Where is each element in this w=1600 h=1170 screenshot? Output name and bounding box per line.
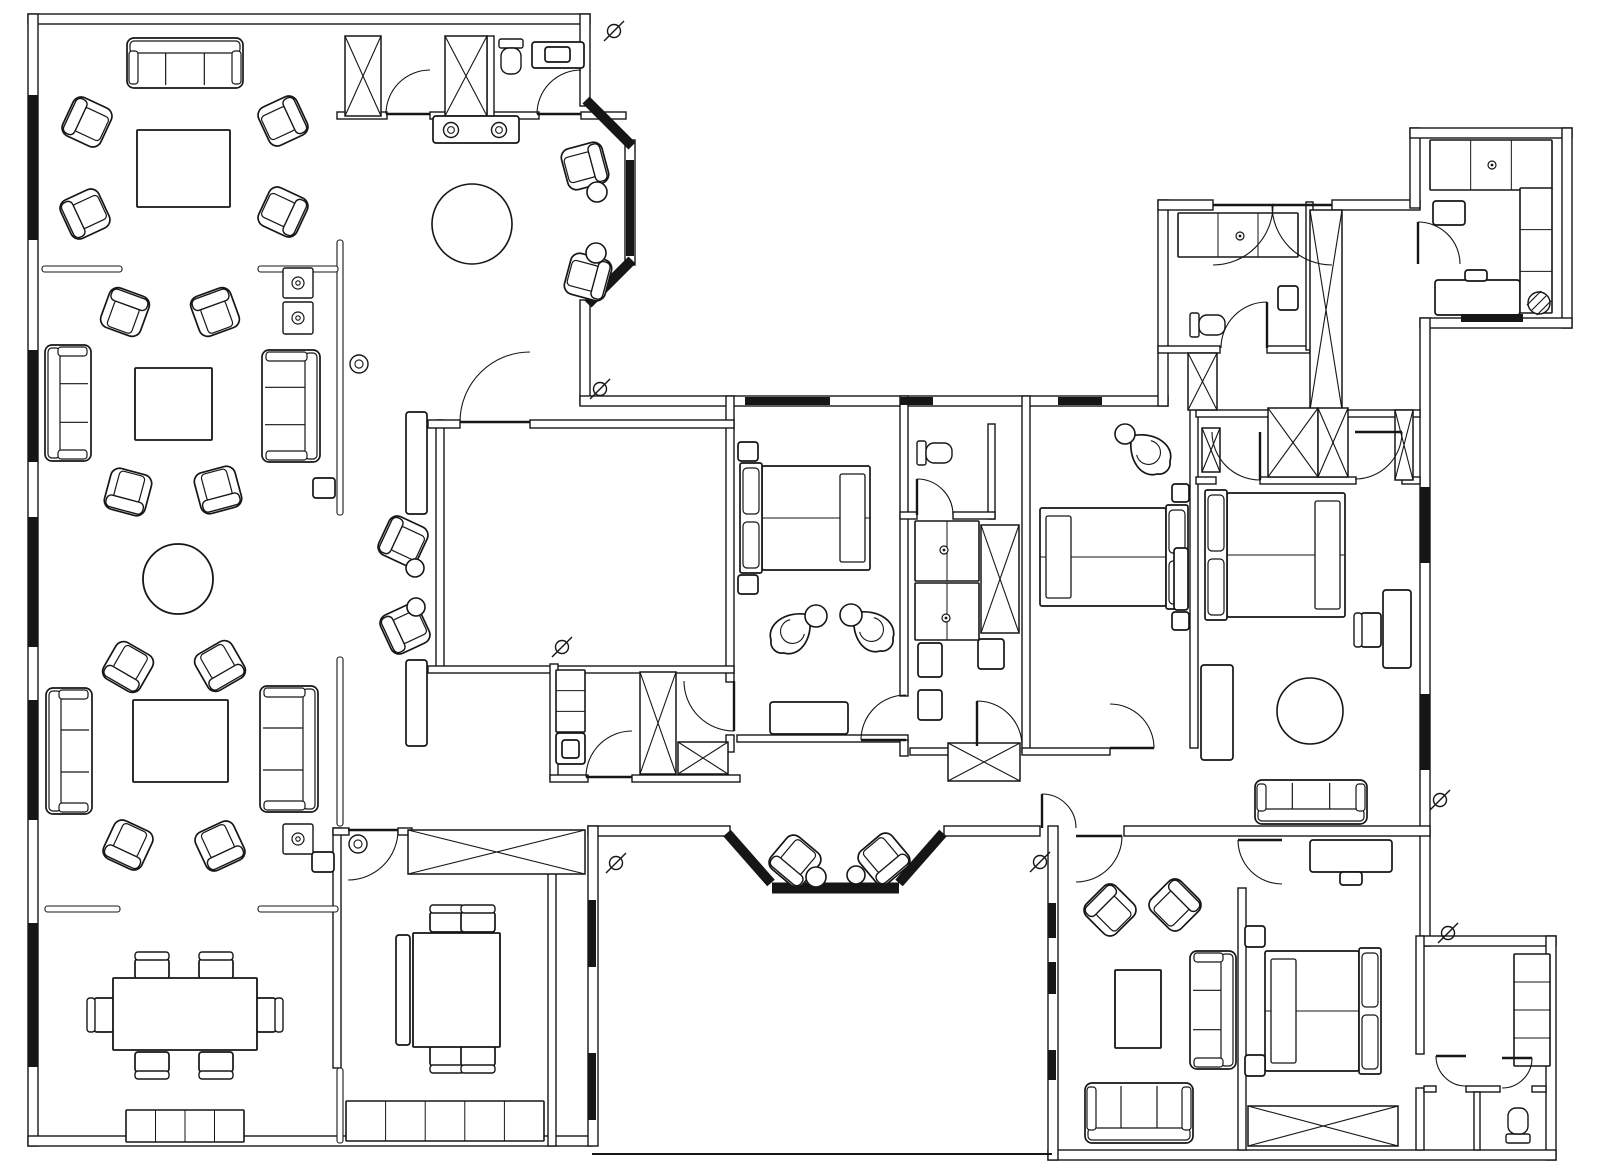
door [586,731,632,777]
coffee-table [137,130,230,207]
appliance [1433,201,1465,225]
part [1383,590,1411,668]
part [406,412,427,514]
wall [988,424,995,519]
part [461,1065,495,1073]
chair [1145,875,1204,934]
closet [1318,408,1348,477]
side-table-round [407,598,425,616]
part [430,912,464,932]
closet [1202,428,1220,472]
sofa-3seat [262,350,320,462]
cabinet-row [346,1101,544,1141]
part [1461,314,1523,322]
door-swing-arc [1418,222,1460,264]
part [918,643,942,677]
part [1199,315,1225,335]
part [1087,1087,1096,1130]
wall [436,420,444,672]
side-table-round [806,867,826,887]
part [1046,516,1071,598]
wall [580,300,590,404]
part [135,952,169,960]
door [537,70,581,114]
level-mark [604,21,624,41]
part [1174,548,1188,610]
part [135,1071,169,1079]
closet [678,742,728,774]
part [1310,840,1392,872]
door [1238,840,1282,884]
cabinet [978,639,1004,669]
chair [102,466,153,517]
part [232,51,241,84]
wall [530,420,734,428]
part [49,691,61,811]
planter [350,355,368,373]
part [199,1071,233,1079]
bench [770,702,848,734]
level-mark [1030,852,1050,872]
double-bed [1265,948,1381,1074]
wall [1158,200,1168,406]
sliding-partition-track [337,240,343,515]
part [58,347,87,356]
bench [396,935,410,1045]
part [430,1065,464,1073]
part [461,1046,495,1066]
part [406,660,427,746]
sofa-3seat [46,688,92,814]
sofa-3seat [127,38,243,88]
part [1354,613,1362,647]
closet [1248,1106,1398,1146]
side-table-round [1115,424,1135,444]
wall [1410,128,1572,138]
part [133,700,228,782]
part [1361,613,1381,647]
cabinet [918,643,942,677]
part [58,450,87,459]
wall [1416,936,1424,1054]
part [313,478,335,498]
closet [345,36,381,116]
chair [255,93,311,149]
part [1277,678,1343,744]
part [407,598,425,616]
speaker-box [283,824,313,854]
part [94,998,114,1032]
side-table [313,478,335,498]
planter [349,835,367,853]
closet [1268,408,1318,477]
wall [1474,1092,1480,1150]
part [266,451,307,460]
part [743,522,759,568]
sliding-partition-track [45,906,120,912]
toilet [1506,1108,1530,1143]
window [727,833,771,883]
part [432,184,512,264]
sofa-2seat [1255,780,1367,824]
side-table-round [847,866,865,884]
part [917,441,926,465]
part [1257,784,1266,811]
chair [99,638,156,695]
door [1042,794,1076,828]
dining-table [113,978,257,1050]
part [840,604,862,626]
sofa-3seat [260,686,318,812]
schair [135,1052,169,1079]
chair [192,464,243,515]
part [87,998,95,1032]
part [1315,501,1340,609]
wardrobe [556,670,585,732]
window [586,100,632,146]
part [135,368,212,440]
part [59,803,88,812]
wall [28,14,590,24]
double-bed [1040,505,1188,609]
part [296,316,300,320]
part [1208,559,1224,615]
closet [445,36,487,116]
schair [461,1046,495,1073]
part [305,353,317,459]
round-table [143,544,213,614]
part [137,130,230,207]
part [586,243,606,263]
part [135,959,169,979]
wall [1158,200,1213,210]
schair [87,998,114,1032]
wall [1124,826,1430,836]
part [461,905,495,913]
part [1465,270,1487,281]
door [1418,222,1460,264]
wall [1466,1086,1500,1092]
part [406,559,424,577]
part [448,127,455,134]
part [738,575,758,594]
part [562,740,579,758]
area-rug [1115,970,1161,1048]
double-bed [1205,490,1345,620]
part [430,1046,464,1066]
wall [1267,346,1310,353]
door-swing-arc [1110,704,1154,748]
part [496,127,503,134]
floor-plan-page [0,0,1600,1170]
part [199,1052,233,1072]
part [199,952,233,960]
wall [333,828,349,835]
sliding-partition-track [337,1068,343,1143]
wall [1410,128,1420,208]
part [1208,495,1224,551]
console [406,412,427,514]
part [743,468,759,514]
level-mark [552,637,572,657]
wall [1022,396,1030,752]
door [684,681,734,731]
wall [1420,318,1430,946]
chair [375,513,431,569]
part [1245,926,1265,947]
wall [1158,346,1220,353]
part [978,639,1004,669]
door [1436,1056,1466,1086]
sofa-3seat [1085,1083,1193,1143]
part [1435,280,1520,315]
schair [199,1052,233,1079]
door [917,479,953,515]
schair [461,905,495,932]
part [1340,872,1362,885]
part [396,935,410,1045]
part [1362,1015,1378,1069]
island-knob [1465,270,1487,281]
sliding-partition-track [258,906,338,912]
part [275,998,283,1032]
chair [1080,880,1139,939]
schair [135,952,169,979]
door [977,701,1022,746]
closet [1188,353,1217,410]
part [499,39,523,48]
part [129,51,138,84]
part [354,840,362,848]
nightstand [738,442,758,461]
chair [57,186,113,242]
wall [900,740,908,756]
schair [430,905,464,932]
schair [199,952,233,979]
sideboard [126,1110,244,1142]
chair [255,184,311,240]
schair [1354,613,1381,647]
part [587,182,607,202]
part [1239,235,1242,238]
part [806,867,826,887]
toilet [917,441,952,465]
sink [942,614,950,622]
part [266,352,307,361]
wall [1332,200,1420,210]
part [1088,1128,1190,1140]
wall [726,396,734,682]
wall [550,775,588,782]
part [770,702,848,734]
coffee-table [133,700,228,782]
nightstand [1245,1055,1265,1076]
part [545,47,570,62]
door-swing-arc [1076,836,1122,882]
wall [900,396,908,696]
part [143,544,213,614]
wall [1022,748,1110,755]
closet [640,672,676,774]
side-table-round [406,559,424,577]
wall [632,775,740,782]
part [1115,424,1135,444]
wall [487,36,494,119]
level-mark [606,853,626,873]
sink [1236,232,1244,240]
sofa-3seat [1190,951,1236,1069]
door-swing-arc [1042,794,1076,828]
side-table-round [805,605,827,627]
wall [953,512,995,519]
sink [940,546,948,554]
part [1508,1108,1528,1134]
part [135,1052,169,1072]
door-swing-arc [537,70,581,114]
floor-plan-drawing [0,0,1600,1170]
part [346,1101,544,1141]
closet [981,525,1019,633]
wall [944,826,1040,836]
part [312,852,334,872]
door-swing-arc [684,681,734,731]
wall [548,870,556,1146]
chair [98,285,152,339]
door-swing-arc [1221,302,1267,348]
door-swing-arc [460,352,530,422]
sofa-3seat [45,345,91,461]
sliding-partition-track [337,657,343,826]
part [1190,313,1199,337]
nightstand [1172,612,1189,630]
door-swing-arc [586,731,632,777]
nightstand [738,575,758,594]
wall [900,512,917,519]
chaise [1201,665,1233,760]
part [1221,954,1233,1066]
wall [588,826,730,836]
part [113,978,257,1050]
part [303,689,315,809]
console [406,660,427,746]
chair [188,285,242,339]
door-swing-arc [977,701,1022,746]
planter [492,123,507,138]
part [1245,1055,1265,1076]
door [1221,302,1267,348]
nightstand [1172,484,1189,502]
toilet [499,39,523,74]
sliding-partition-track [42,266,122,272]
part [1506,1134,1530,1143]
closet [408,830,585,874]
coffee-table [135,368,212,440]
part [1169,510,1185,553]
closet [1395,410,1413,480]
part [847,866,865,884]
door-swing-arc [1238,840,1282,884]
shelf [1278,286,1298,310]
part [130,41,240,53]
schair [430,1046,464,1073]
part [256,998,276,1032]
door [861,695,906,740]
part [48,348,60,458]
wall [1190,406,1198,748]
door-swing-arc [861,695,906,740]
part [1172,484,1189,502]
side-table-round [586,243,606,263]
part [413,933,500,1047]
part [840,474,865,562]
vanity [1514,954,1550,1066]
part [945,617,948,620]
round-rug [1277,678,1343,744]
wall [1196,477,1216,484]
kitchen-island [1435,280,1520,315]
drawer [1340,872,1362,885]
wall [1532,1086,1546,1092]
chair [191,637,248,694]
part [926,443,952,463]
part [1194,1058,1223,1067]
speaker-box [283,268,313,298]
kitchen-mat [1461,314,1523,322]
part [1356,784,1365,811]
wall [1048,1150,1556,1160]
double-bed [740,463,870,573]
part [430,905,464,913]
door-swing-arc [386,70,430,114]
part [1182,1087,1191,1130]
desk [1383,590,1411,668]
kitchen-counter [915,583,979,640]
side-table-round [587,182,607,202]
chair [59,94,115,150]
part [199,959,233,979]
part [1201,665,1233,760]
part [943,549,946,552]
door [1110,704,1154,748]
part [264,801,305,810]
part [264,688,305,697]
door [1076,836,1122,882]
part [1258,809,1364,821]
part [1194,953,1223,962]
door [386,70,430,114]
part [1491,164,1494,167]
part [1278,286,1298,310]
part [1172,612,1189,630]
radiator [1174,548,1188,610]
part [296,837,300,841]
part [355,360,363,368]
side-table [312,852,334,872]
part [501,48,521,74]
part [805,605,827,627]
study-table [413,933,500,1047]
wall [428,420,460,428]
part [918,690,942,720]
wall [1416,1088,1424,1150]
wall [1562,128,1572,328]
closet [1310,210,1342,410]
cabinet-inner [562,740,579,758]
wall [1260,477,1356,484]
level-mark [1430,790,1450,810]
cabinet [918,690,942,720]
part [461,912,495,932]
